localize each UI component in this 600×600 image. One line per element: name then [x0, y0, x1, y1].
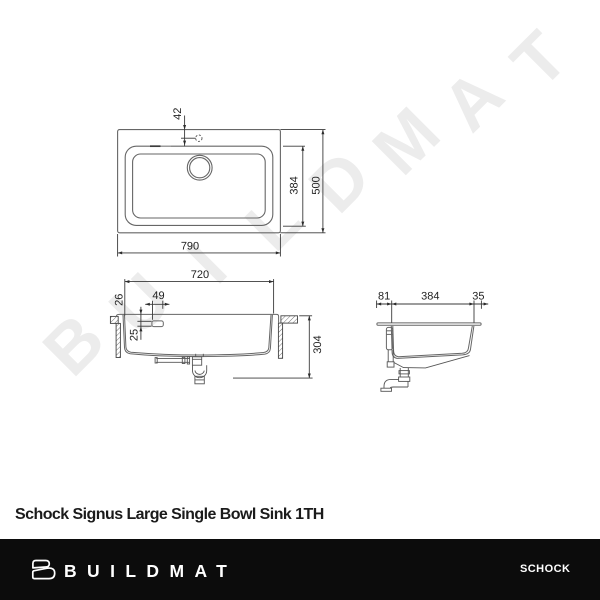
svg-text:720: 720 — [191, 269, 209, 281]
svg-text:T: T — [497, 17, 582, 102]
svg-text:B: B — [28, 299, 119, 390]
svg-text:42: 42 — [172, 108, 184, 120]
svg-text:81: 81 — [378, 291, 390, 303]
svg-text:I: I — [172, 229, 241, 298]
svg-text:304: 304 — [312, 335, 324, 353]
svg-text:25: 25 — [129, 329, 141, 341]
svg-text:500: 500 — [311, 176, 323, 194]
svg-text:M: M — [358, 93, 454, 189]
svg-text:A: A — [427, 55, 518, 146]
svg-text:35: 35 — [472, 291, 484, 303]
svg-text:26: 26 — [113, 294, 125, 306]
svg-text:384: 384 — [288, 176, 300, 194]
svg-text:49: 49 — [152, 290, 164, 302]
svg-text:790: 790 — [181, 241, 199, 253]
svg-text:D: D — [294, 136, 385, 227]
svg-text:384: 384 — [421, 291, 439, 303]
